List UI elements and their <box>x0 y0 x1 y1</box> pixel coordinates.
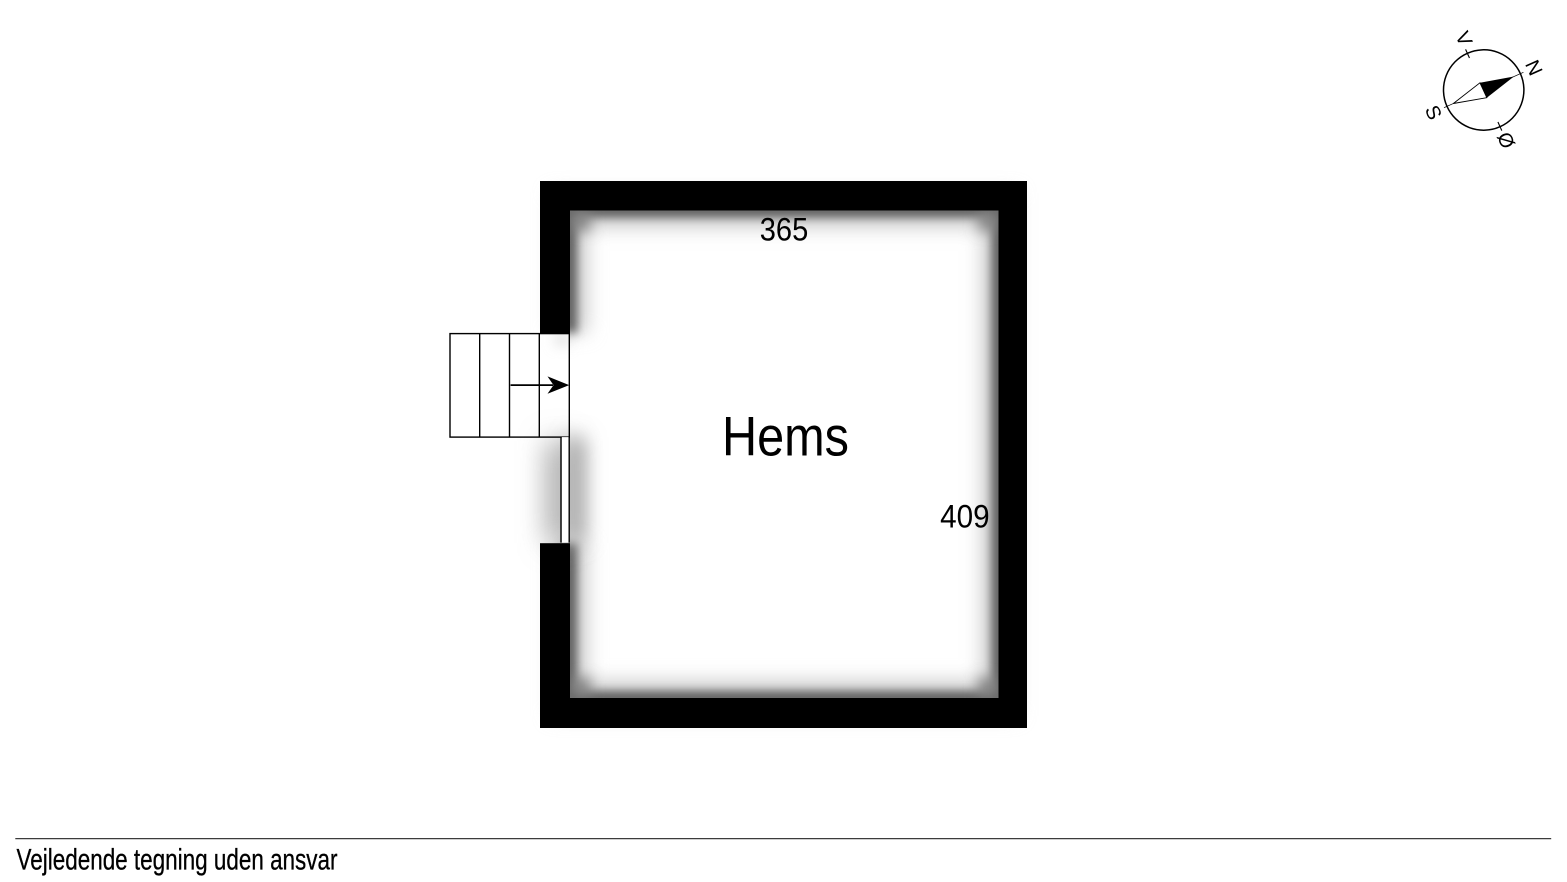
svg-text:Hems: Hems <box>722 405 849 468</box>
svg-text:Vejledende tegning uden ansvar: Vejledende tegning uden ansvar <box>17 843 338 876</box>
svg-text:409: 409 <box>940 498 990 534</box>
svg-text:365: 365 <box>760 212 809 248</box>
